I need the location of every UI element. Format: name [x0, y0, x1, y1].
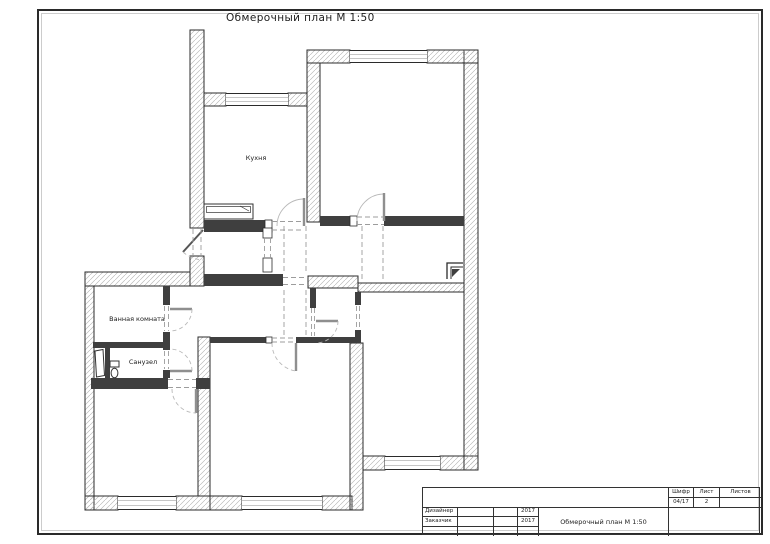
stamp-role-client: Заказчик — [423, 517, 458, 526]
stamp-cell-empty — [423, 527, 458, 536]
label-wc: Санузел — [129, 358, 157, 366]
stamp-cell-empty — [458, 508, 494, 517]
stamp-sheets-value — [719, 498, 761, 508]
stamp-sheet-value: 2 — [693, 498, 719, 508]
stamp-cell-empty — [458, 517, 494, 526]
toilet-fixture — [110, 361, 119, 378]
door-bedroom-left — [172, 389, 196, 413]
stamp-cell-empty — [458, 527, 494, 536]
window-bedroom-left — [118, 496, 176, 510]
title-block: Шифр Лист Листов 04/17 2 Дизайнер 2017 З… — [422, 487, 760, 535]
stamp-code-label: Шифр — [668, 488, 693, 498]
stamp-cell-empty — [494, 527, 518, 536]
stamp-code-value: 04/17 — [668, 498, 693, 508]
stamp-doc-title: Обмерочный план М 1:50 — [539, 508, 668, 536]
stamp-empty-right — [668, 508, 761, 536]
window-bedroom-right — [385, 456, 440, 470]
stamp-year-client: 2017 — [518, 517, 539, 526]
stamp-cell-empty — [494, 508, 518, 517]
label-kitchen: Кухня — [246, 154, 267, 162]
stamp-cell-empty — [494, 517, 518, 526]
kitchen-counter — [204, 204, 253, 219]
drawing-sheet: Обмерочный план М 1:50 — [0, 0, 770, 544]
closet-door-leaf — [95, 350, 105, 378]
room-labels: Кухня Ванная комната Санузел — [109, 154, 266, 366]
stamp-sheets-label: Листов — [719, 488, 761, 498]
floor-plan: Кухня Ванная комната Санузел — [0, 0, 770, 544]
label-bathroom: Ванная комната — [109, 315, 165, 323]
stamp-year-designer: 2017 — [518, 508, 539, 517]
door-bathroom — [170, 309, 192, 331]
vent-corner-marker — [447, 263, 463, 279]
window-bedroom-middle — [242, 496, 322, 510]
stamp-sheet-label: Лист — [693, 488, 719, 498]
door-wc — [170, 349, 192, 371]
stamp-cell-empty — [518, 527, 539, 536]
window-living-room — [350, 50, 427, 63]
door-bedroom-middle — [272, 343, 296, 371]
stamp-empty-top — [423, 488, 668, 508]
window-kitchen — [226, 93, 288, 106]
stamp-role-designer: Дизайнер — [423, 508, 458, 517]
